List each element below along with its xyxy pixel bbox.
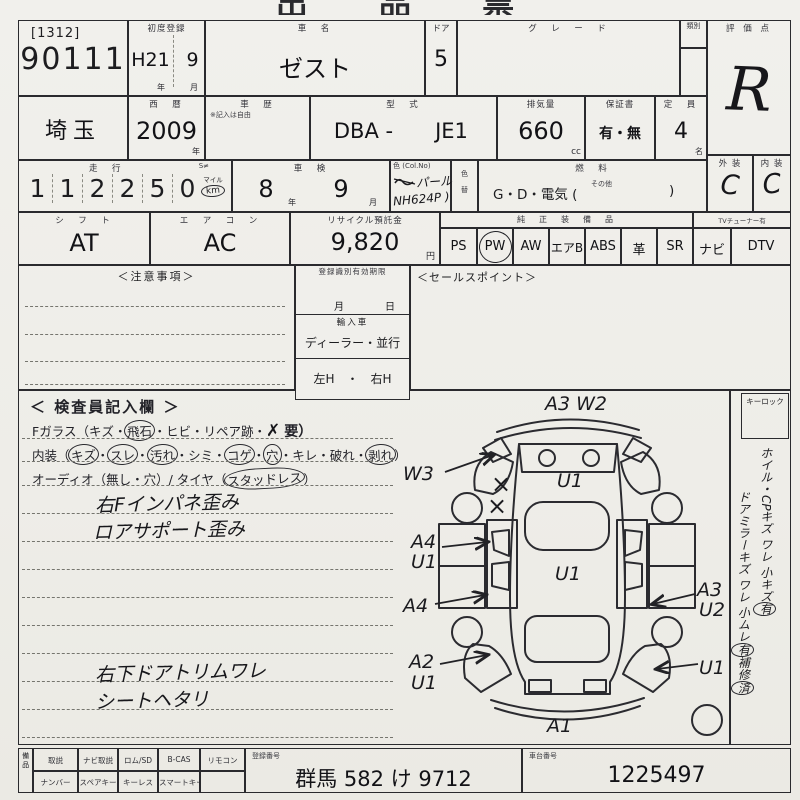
manual-cell: 取説 [33,748,78,771]
day-char: 日 [385,298,395,313]
year-unit: 年 [192,146,200,157]
sidebar-hand-notes: ホイル・CPキズ ワレ 小キズ有 ドアミラーキズ ワレ 小ムレ有補修済 [733,447,775,741]
color-scribble [393,175,417,187]
exterior-cell: 外 装 C [707,155,753,212]
ruibetsu-empty-cell [680,48,707,96]
ruibetsu-cell: 類別 [680,20,707,48]
top-title-clip: 出 品 票 [245,0,575,15]
accessories-label-cell: 備品 [18,748,33,793]
bcas-cell: B-CAS [158,748,200,771]
plate-cell: ナンバー [33,771,78,793]
fuel-value: G・D・電気 ( [493,183,577,203]
shift-cell: シ フ ト AT [18,212,150,265]
displacement-unit: cc [571,147,581,157]
smart-key-cell: スマートキー [158,771,200,793]
equip-airbag: エアB [550,239,584,256]
shaken-unit-month: 月 [369,197,377,208]
color-number: NH624P ) [392,190,450,209]
notice-cell: ＜注意事項＞ [18,265,295,390]
ruibetsu-label: 類別 [681,21,706,31]
mileage-s-mark: S≠ [199,162,209,170]
auction-grade-value: R [707,54,791,127]
import-value: ディーラー・並行 [296,334,409,351]
repair-note: 補修 [736,657,750,681]
warranty-value: 有・無 [586,123,654,143]
car-damage-diagram: A3 W2 W3 × × U1 A4 U1 U1 A4 A3 U2 A2 U1 … [395,392,730,745]
equip-abs-cell: ABS [585,228,621,265]
handle-position: 左H ・ 右H [296,370,409,387]
aircon-value: AC [151,229,289,257]
lot-number: 90111 [19,42,127,77]
sales-point-label: ＜セールスポイント＞ [411,266,790,285]
recycle-label: リサイクル預託金 [291,213,439,226]
first-registration-label: 初度登録 [129,21,204,34]
mileage-digit: 5 [143,174,173,203]
keyless-cell: キーレス [118,771,158,793]
keylock-box: キーロック [741,393,789,439]
ruled-line [25,334,285,335]
unit-month: 月 [190,82,198,93]
reg-expiry-label: 登録識別有効期限 [296,266,409,277]
damage-code-w3: W3 [403,463,434,485]
doors-value: 5 [426,47,456,72]
manual-label: 取説 [34,755,77,766]
equip-sr-cell: SR [657,228,693,265]
x-mark: × [487,492,507,520]
empty-cell [200,771,245,793]
sidebar-column: キーロック ホイル・CPキズ ワレ 小キズ有 ドアミラーキズ ワレ 小ムレ有補修… [730,390,791,745]
color-cell: 色 (Col.No) パール NH624P ) [390,160,451,212]
equip-ps: PS [441,239,476,254]
capacity-value: 4 [656,119,706,144]
equip-dtv-cell: DTV [731,228,791,265]
damage-code-u1: U1 [699,657,725,679]
damage-code-hatch: U1 [557,470,583,492]
bcas-label: B-CAS [159,755,199,764]
fuel-other: その他 [591,179,612,189]
divider [296,314,409,315]
mileage-digit: 1 [53,174,83,203]
displacement-label: 排気量 [498,97,584,110]
recycle-value: 9,820 [291,228,439,256]
shaken-label: 車 検 [233,161,389,174]
divider [296,358,409,359]
interior-cell: 内 装 C [753,155,791,212]
recycle-unit: 円 [426,249,435,262]
equip-leather-cell: 革 [621,228,657,265]
equip-navi: ナビ [694,239,730,258]
fuel-close: ) [669,183,674,199]
mileage-digits: 1 1 2 2 5 0 [23,174,202,203]
equipment-header: 純 正 装 備 品 [441,213,692,225]
shift-label: シ フ ト [19,213,149,226]
equip-aw: AW [514,239,548,254]
interior-grade: C [752,167,791,202]
history-label: 車 歴 [206,97,309,110]
color-change-top: 色 [452,161,477,179]
equip-leather: 革 [622,239,656,258]
year-value: 2009 [129,117,204,145]
model-code-label: 型 式 [311,97,496,110]
fuel-cell: 燃 料 G・D・電気 ( その他 ) [478,160,707,212]
keylock-label: キーロック [742,394,788,407]
damage-code-a3: A3 [695,579,722,601]
mirror-note: ドアミラーキズ ワレ [736,491,750,603]
score-label: 評 価 点 [708,21,790,34]
circled-zumi: 済 [731,680,755,695]
wheel-note: ホイル・CPキズ ワレ [759,447,773,562]
sales-point-cell: ＜セールスポイント＞ [410,265,791,390]
small-blemish-note: 小ムレ [736,607,750,643]
registration-number-label: 登録番号 [246,749,521,761]
damage-code-a4: A4 [409,531,436,553]
ruled-line [25,306,285,307]
equip-navi-cell: ナビ [693,228,731,265]
top-title: 出 品 票 [276,0,544,15]
sidebar-note-col: ドアミラーキズ ワレ 小ムレ有補修済 [733,447,752,741]
import-label: 輸入車 [296,316,409,328]
spare-key-cell: スペアキー [78,771,118,793]
doors-label: ドア [426,21,456,34]
tuner-note-cell: TVチューナー有 [693,212,791,228]
equip-abs: ABS [586,239,620,254]
damage-code-u2: U2 [699,599,725,621]
car-name-value: ゼスト [206,49,424,84]
auction-sheet: 出 品 票 [1312] 90111 初度登録 H21 9 年 月 車 名 ゼス… [0,0,800,800]
car-name-label: 車 名 [206,21,424,34]
remote-label: リモコン [201,755,244,766]
doors-cell: ドア 5 [425,20,457,96]
shaken-cell: 車 検 8 年 9 月 [232,160,390,212]
color-change-bottom: 替 [452,179,477,195]
equipment-header-cell: 純 正 装 備 品 [440,212,693,228]
circled-ari: 有 [731,642,755,657]
grade-label: グ レ ー ド [458,21,679,34]
damage-code-u1: U1 [411,551,437,573]
accessories-label: 備品 [20,752,30,770]
color-label: 色 (Col.No) [391,161,450,171]
score-cell: 評 価 点 R [707,20,791,155]
registration-number-cell: 登録番号 群馬 582 け 9712 [245,748,522,793]
navi-manual-cell: ナビ取説 [78,748,118,771]
exterior-label: 外 装 [708,156,752,169]
exterior-grade: C [707,169,753,203]
capacity-label: 定 員 [656,97,706,110]
navi-manual-label: ナビ取説 [79,755,117,766]
fuel-label: 燃 料 [479,161,706,174]
equip-dtv: DTV [732,239,790,254]
unit-year: 年 [157,82,165,93]
mileage-label: 走 行 [89,161,124,174]
equip-aw-cell: AW [513,228,549,265]
warranty-label: 保証書 [586,97,654,110]
damage-code-roof: U1 [555,563,581,585]
small-scratch-note: 小キズ [759,566,773,602]
damage-code-u1: U1 [411,672,437,694]
month-char: 月 [334,298,344,313]
shift-value: AT [19,229,149,257]
chassis-number-value: 1225497 [523,763,790,788]
sidebar-note-col: ホイル・CPキズ ワレ 小キズ有 [755,447,774,741]
plate-label: ナンバー [34,777,77,788]
recycle-cell: リサイクル預託金 9,820 円 [290,212,440,265]
chassis-number-cell: 車台番号 1225497 [522,748,791,793]
notice-label: ＜注意事項＞ [19,266,294,284]
damage-code-a4: A4 [401,595,428,617]
registration-number-value: 群馬 582 け 9712 [246,763,521,793]
mileage-digit: 1 [23,174,53,203]
mileage-digit: 2 [83,174,113,203]
first-registration-cell: 初度登録 H21 9 年 月 [128,20,205,96]
damage-code-rear: A3 W2 [543,393,607,415]
car-name-cell: 車 名 ゼスト [205,20,425,96]
registration-block: 登録識別有効期限 月 日 輸入車 ディーラー・並行 左H ・ 右H [295,265,410,400]
displacement-cell: 排気量 660 cc [497,96,585,160]
rom-sd-cell: ロム/SD [118,748,158,771]
year-cell: 西 暦 2009 年 [128,96,205,160]
prefecture-cell: 埼玉 [18,96,128,160]
warranty-cell: 保証書 有・無 [585,96,655,160]
rom-sd-label: ロム/SD [119,755,157,766]
ruled-line [25,361,285,362]
chassis-number-label: 車台番号 [523,749,790,761]
keyless-label: キーレス [119,777,157,788]
damage-code-front: A1 [545,715,572,737]
smart-key-label: スマートキー [159,777,199,788]
prefecture-value: 埼玉 [19,113,127,145]
aircon-label: エ ア コ ン [151,213,289,226]
grade-cell: グ レ ー ド [457,20,680,96]
year-label: 西 暦 [129,97,204,110]
capacity-unit: 名 [695,146,703,157]
color-change-cell: 色 替 [451,160,478,212]
model-code-cell: 型 式 DBA - JE1 [310,96,497,160]
spare-key-label: スペアキー [79,777,117,788]
displacement-value: 660 [498,117,584,145]
remote-cell: リモコン [200,748,245,771]
equip-ps-cell: PS [440,228,477,265]
tuner-note: TVチューナー有 [694,213,790,225]
aircon-cell: エ ア コ ン AC [150,212,290,265]
lot-cell: [1312] 90111 [18,20,128,96]
capacity-cell: 定 員 4 名 [655,96,707,160]
equip-sr: SR [658,239,692,254]
mileage-digit: 2 [113,174,143,203]
ruled-line [25,384,285,385]
circled-ari: 有 [753,602,777,617]
damage-code-a2: A2 [407,651,434,673]
equip-airbag-cell: エアB [549,228,585,265]
color-hand-value: パール [415,172,452,191]
lot-bracket: [1312] [19,21,127,41]
